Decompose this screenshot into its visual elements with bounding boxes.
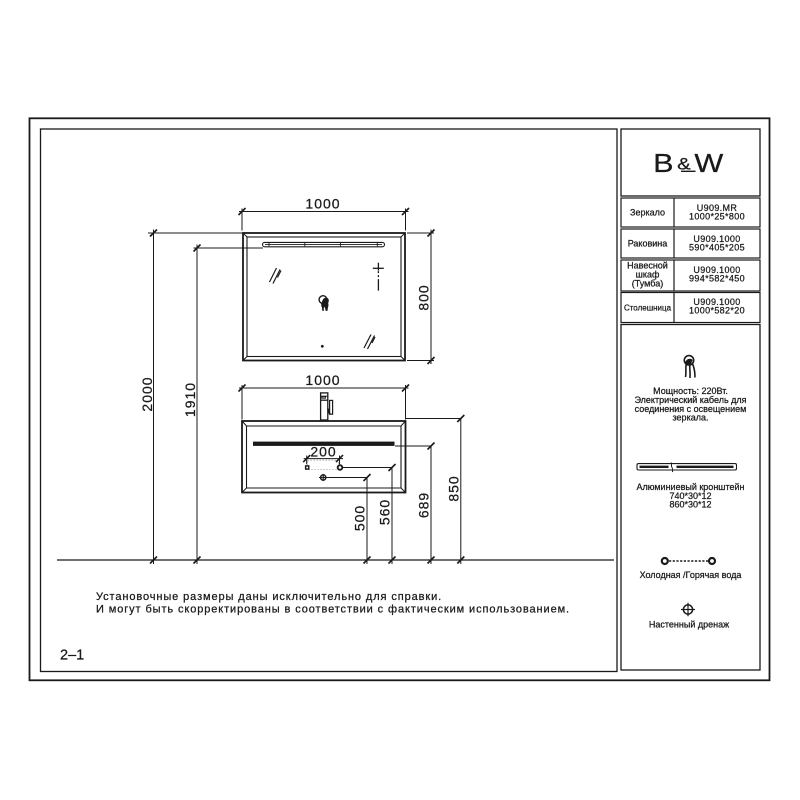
svg-text:2000: 2000 [139, 376, 155, 411]
svg-text:Холодная /Горячая вода: Холодная /Горячая вода [640, 570, 742, 580]
svg-text:Установочные размеры даны искл: Установочные размеры даны исключительно … [96, 591, 442, 603]
svg-text:1000: 1000 [305, 196, 340, 212]
svg-text:И могут быть скорректированы в: И могут быть скорректированы в соответст… [96, 604, 570, 616]
svg-text:Раковина: Раковина [628, 239, 668, 249]
svg-text:Столешница: Столешница [624, 304, 672, 313]
svg-text:200: 200 [310, 444, 336, 460]
svg-text:Настенный дренаж: Настенный дренаж [649, 620, 729, 630]
svg-text:860*30*12: 860*30*12 [669, 500, 711, 510]
svg-text:689: 689 [416, 492, 432, 518]
svg-text:1910: 1910 [182, 382, 198, 417]
svg-text:1000: 1000 [305, 372, 340, 388]
svg-text:1000*582*20: 1000*582*20 [689, 306, 745, 316]
svg-text:Зеркало: Зеркало [630, 208, 665, 218]
svg-text:2–1: 2–1 [60, 648, 84, 664]
svg-text:850: 850 [446, 475, 462, 501]
svg-text:590*405*205: 590*405*205 [689, 243, 745, 253]
svg-text:зеркала.: зеркала. [673, 412, 709, 422]
svg-text:(Тумба): (Тумба) [632, 279, 663, 289]
svg-text:560: 560 [377, 499, 393, 525]
svg-text:994*582*450: 994*582*450 [689, 274, 745, 284]
svg-text:800: 800 [416, 284, 432, 310]
svg-text:500: 500 [352, 505, 368, 531]
svg-text:1000*25*800: 1000*25*800 [689, 212, 745, 222]
